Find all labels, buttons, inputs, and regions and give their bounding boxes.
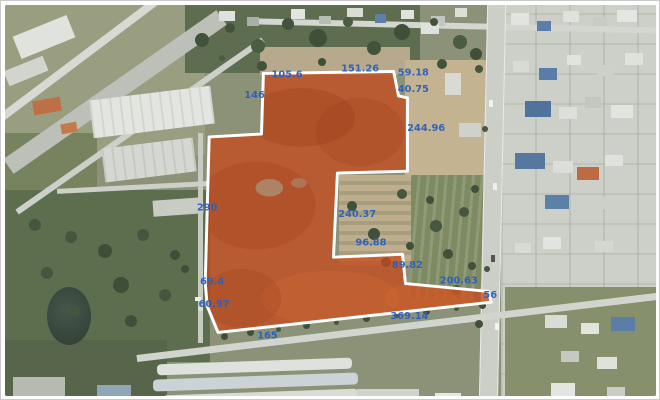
measurement-label: 240.37 [338,209,376,220]
measurement-label: 59.18 [398,67,429,78]
parcel-overlay: 105.6151.2659.1840.75146244.96290240.379… [5,5,656,396]
measurement-label: 290 [197,202,218,213]
measurement-label: 369.14 [390,311,428,322]
measurement-label: 200.63 [440,276,478,287]
map-viewport[interactable]: 105.6151.2659.1840.75146244.96290240.379… [5,5,656,396]
measurement-label: 60.97 [199,299,230,310]
image-frame: 105.6151.2659.1840.75146244.96290240.379… [0,0,660,400]
measurement-label: 69.4 [200,277,224,288]
measurement-label: 56 [483,290,497,301]
measurement-label: 40.75 [398,84,429,95]
measurement-label: 96.88 [355,238,386,249]
measurement-label: 165 [257,330,278,341]
measurement-label: 151.26 [341,64,379,75]
measurement-label: 89.82 [392,260,423,271]
measurement-label: 105.6 [272,69,303,80]
measurement-label: 146 [244,90,265,101]
measurement-label: 244.96 [407,123,445,134]
